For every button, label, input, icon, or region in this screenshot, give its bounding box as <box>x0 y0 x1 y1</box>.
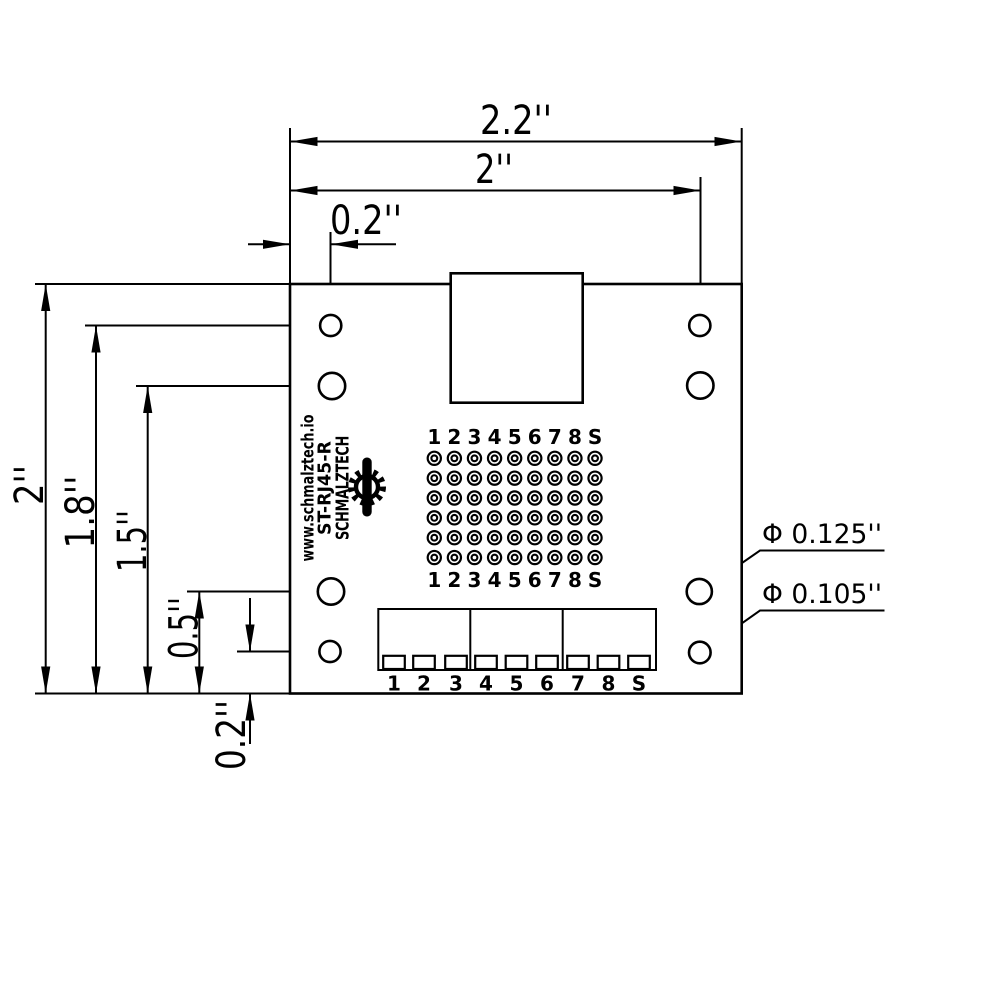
arrow <box>143 386 152 413</box>
pad-col-label-top: 4 <box>488 425 502 449</box>
terminal-label: 7 <box>571 672 585 696</box>
terminal-notch <box>506 656 528 669</box>
dim-text-0-5: 0.5'' <box>162 597 208 659</box>
dim-text-1-8: 1.8'' <box>58 476 104 549</box>
arrow <box>143 667 152 694</box>
terminal-label: 5 <box>510 672 524 696</box>
dim-text-top-to-hole-col: 2'' <box>475 147 513 193</box>
arrow <box>195 667 204 694</box>
pad-col-label-top: 2 <box>447 425 461 449</box>
terminal-label: 6 <box>540 672 554 696</box>
terminal-notch <box>475 656 497 669</box>
mounting-hole-small <box>689 642 711 664</box>
pad-col-label-bottom: 3 <box>468 568 482 592</box>
terminal-notch <box>567 656 589 669</box>
dim-text-left-hole-offset: 0.2'' <box>209 700 255 770</box>
pcb-board: 12345678S 12345678S 12345678S www.schmal… <box>290 273 742 695</box>
terminal-notch <box>445 656 467 669</box>
callout-hole-diameter-large: Φ 0.125'' <box>762 519 882 550</box>
terminal-notch <box>413 656 435 669</box>
technical-drawing-page: 12345678S 12345678S 12345678S www.schmal… <box>0 0 1000 1000</box>
silkscreen-part-number: ST-RJ45-R <box>315 441 336 535</box>
pad-labels-top: 12345678S <box>427 425 602 449</box>
rj45-connector-body <box>451 273 583 402</box>
arrow <box>41 667 50 694</box>
terminal-notch <box>598 656 620 669</box>
pad-col-label-top: S <box>588 425 602 449</box>
terminal-label: 4 <box>479 672 493 696</box>
dim-text-1-5: 1.5'' <box>110 510 156 572</box>
arrow <box>291 186 318 195</box>
mounting-hole-small <box>319 641 340 662</box>
terminal-notches <box>383 656 650 669</box>
pad-col-label-bottom: 4 <box>488 568 502 592</box>
terminal-notch <box>383 656 405 669</box>
pad-col-label-bottom: 7 <box>548 568 562 592</box>
dim-text-top-overall: 2.2'' <box>480 98 552 144</box>
arrow <box>91 667 100 694</box>
pad-col-label-bottom: 6 <box>528 568 542 592</box>
mounting-hole-large <box>687 372 713 398</box>
terminal-notch <box>628 656 650 669</box>
pad-labels-bottom: 12345678S <box>427 568 602 592</box>
pad-col-label-top: 8 <box>568 425 582 449</box>
pad-col-label-bottom: 1 <box>427 568 441 592</box>
pad-col-label-top: 7 <box>548 425 562 449</box>
arrow <box>674 186 701 195</box>
pad-col-label-top: 5 <box>508 425 522 449</box>
arrow <box>41 284 50 311</box>
dim-text-top-hole-offset: 0.2'' <box>330 198 402 244</box>
terminal-label: 2 <box>417 672 431 696</box>
arrow <box>91 326 100 353</box>
pcb-dimension-drawing: 12345678S 12345678S 12345678S www.schmal… <box>0 0 1000 1000</box>
mounting-hole-small <box>689 315 710 336</box>
mounting-hole-large <box>318 578 344 604</box>
terminal-labels: 12345678S <box>387 672 646 696</box>
terminal-label: 8 <box>602 672 616 696</box>
callout-hole-diameter-small: Φ 0.105'' <box>762 579 882 610</box>
arrow <box>715 137 742 146</box>
mounting-hole-large <box>319 373 345 399</box>
pad-col-label-bottom: 8 <box>568 568 582 592</box>
arrow <box>263 240 290 249</box>
arrow <box>291 137 318 146</box>
pad-col-label-bottom: 5 <box>508 568 522 592</box>
pad-col-label-top: 1 <box>427 425 441 449</box>
arrow <box>245 625 254 652</box>
terminal-label: 3 <box>449 672 463 696</box>
tool-shaft-icon <box>362 458 371 517</box>
pad-col-label-bottom: S <box>588 568 602 592</box>
pad-col-label-top: 3 <box>468 425 482 449</box>
terminal-label: S <box>632 672 646 696</box>
pad-col-label-top: 6 <box>528 425 542 449</box>
terminal-label: 1 <box>387 672 401 696</box>
terminal-notch <box>536 656 558 669</box>
mounting-hole-large <box>687 579 712 604</box>
mounting-hole-small <box>320 315 341 336</box>
pad-col-label-bottom: 2 <box>447 568 461 592</box>
dim-text-left-overall: 2'' <box>7 465 53 505</box>
